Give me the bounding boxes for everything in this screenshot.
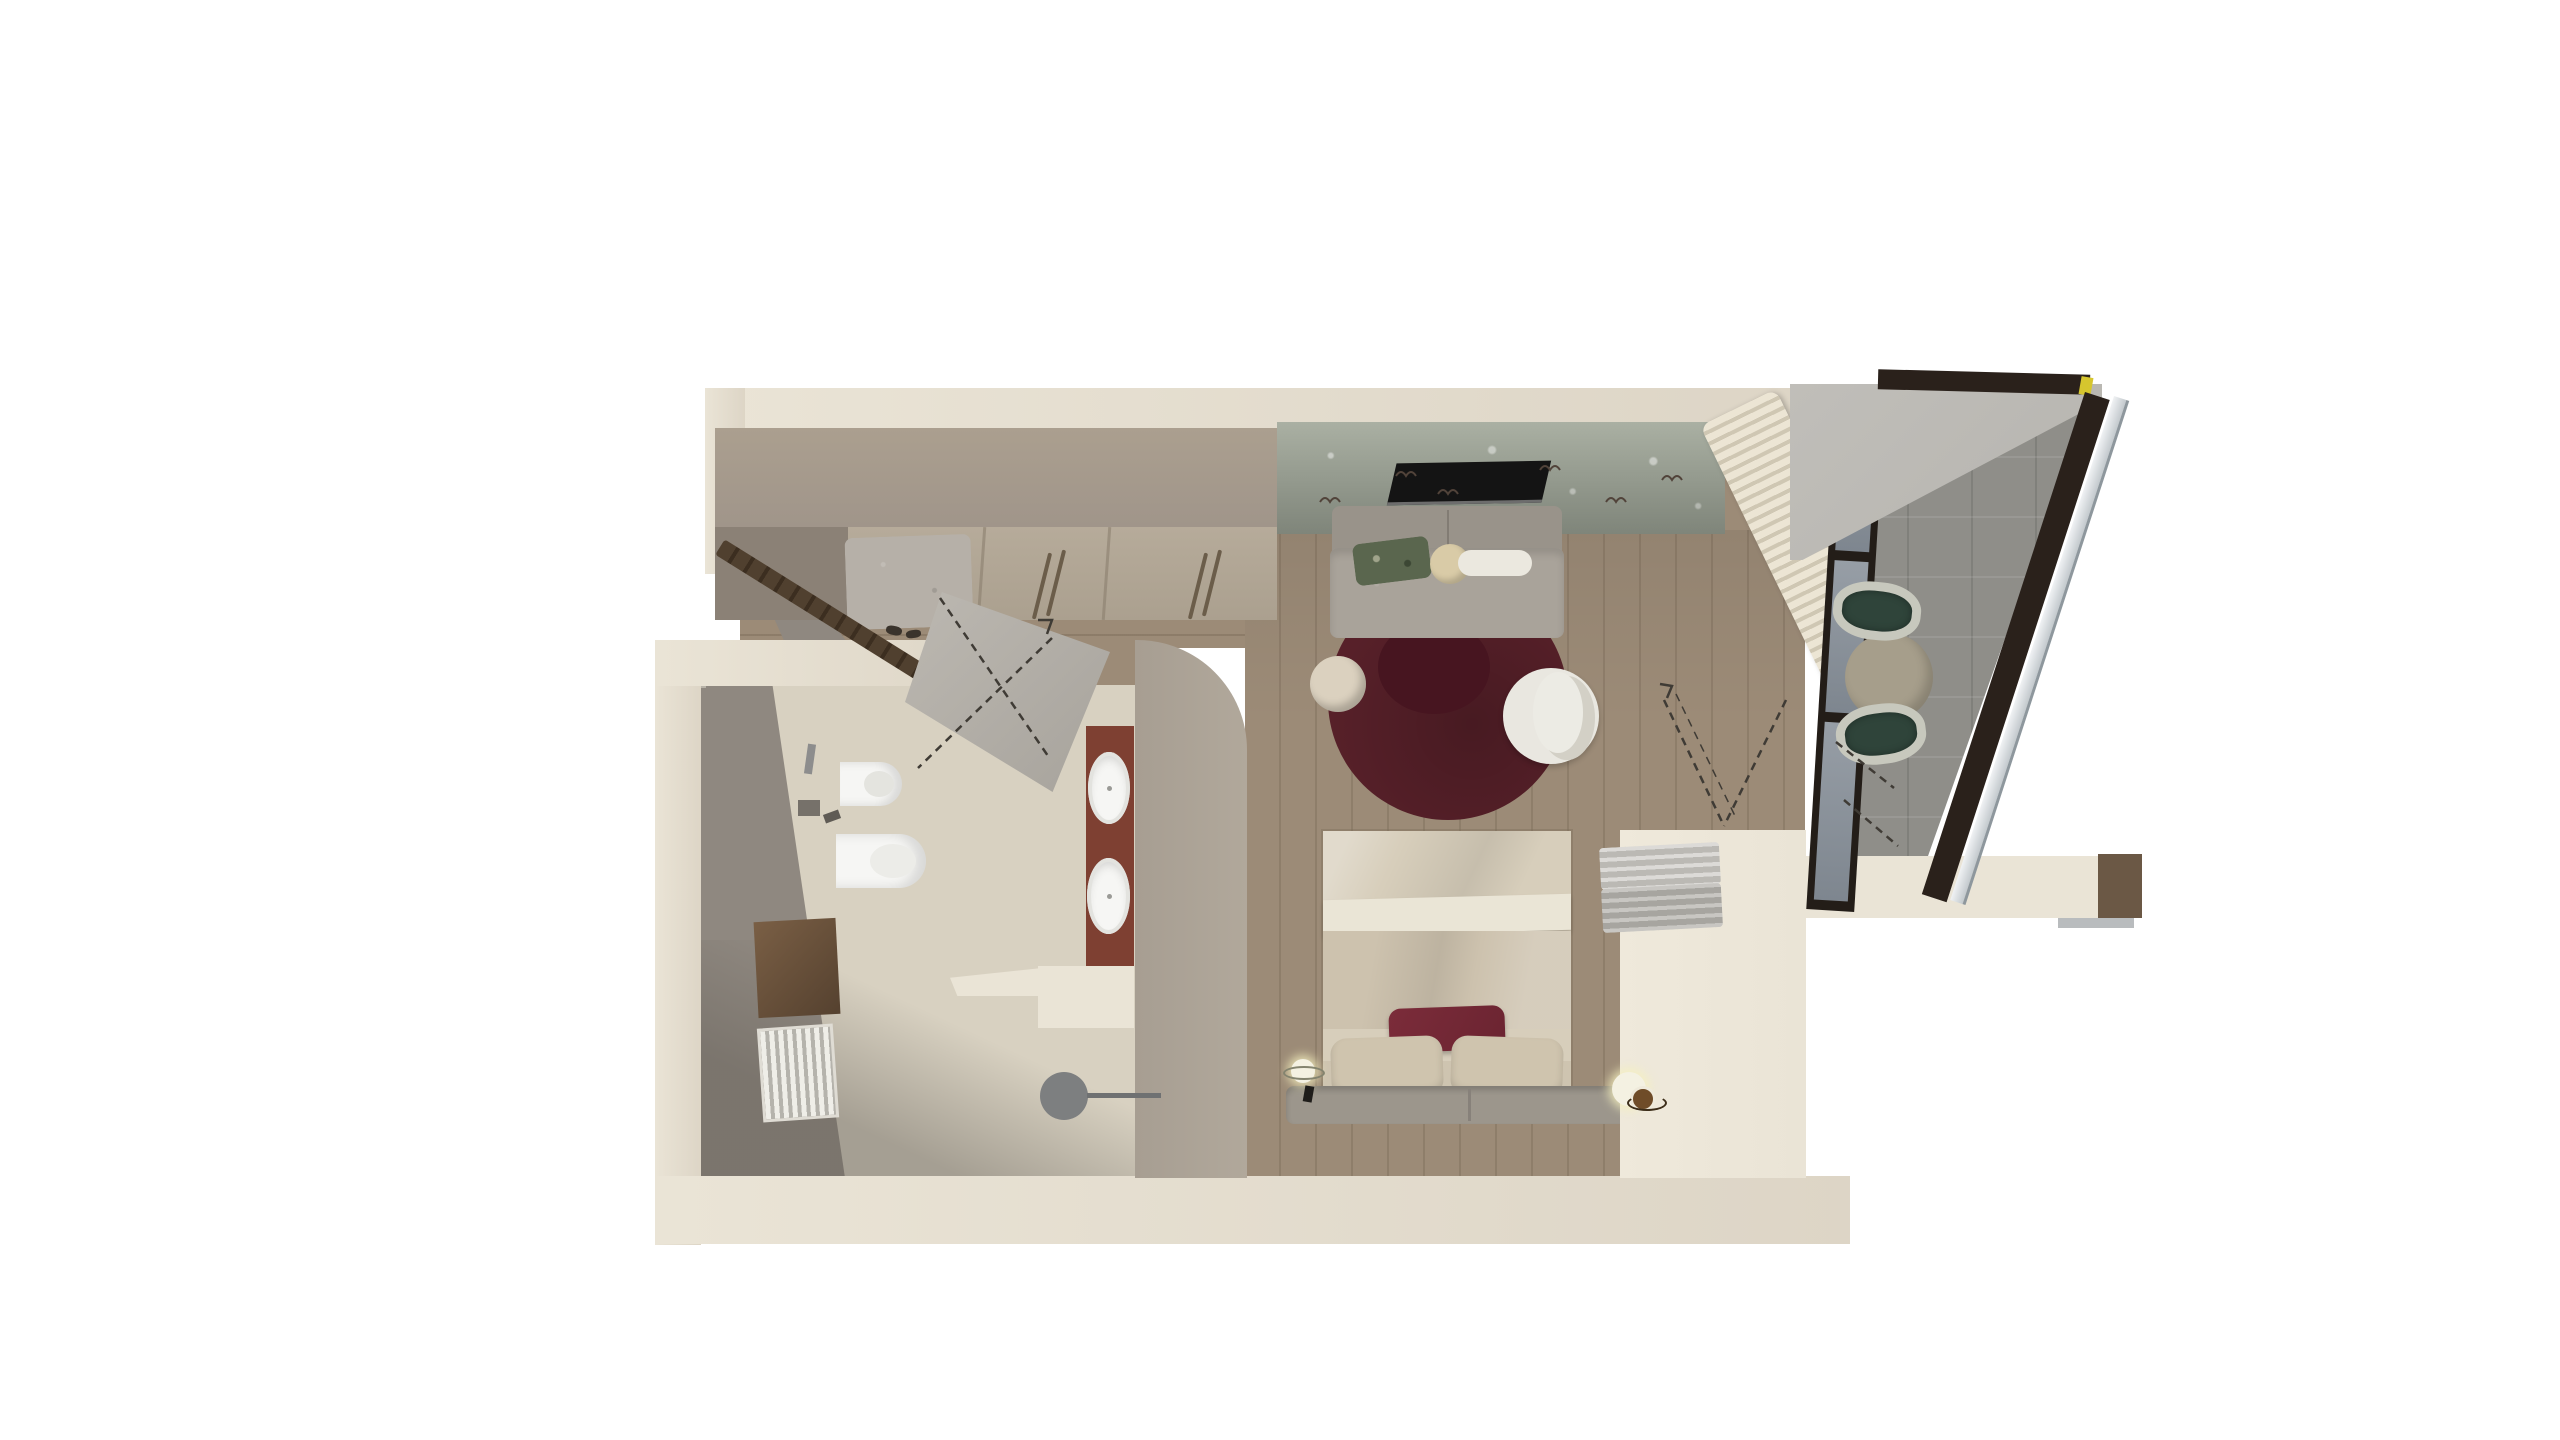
duvet-foot-fold (1323, 831, 1571, 903)
bidet (840, 762, 902, 806)
double-bed (1323, 831, 1571, 1120)
stool-handle (1087, 1093, 1161, 1098)
bottom-exterior-wall (655, 1176, 1850, 1244)
bedside-lamp (1291, 1059, 1315, 1083)
towel-stack (1601, 883, 1723, 933)
sheet-band (1323, 894, 1571, 936)
paper-holder (798, 800, 820, 816)
headboard-bench (1286, 1086, 1650, 1124)
wardrobe-top-panel (715, 428, 1277, 527)
round-stool (1040, 1072, 1088, 1120)
bedside-tray (1630, 1086, 1656, 1112)
towel-radiator (757, 1023, 839, 1122)
floor-plan-render (0, 0, 2560, 1440)
vanity-ledge (1038, 966, 1134, 1028)
wall-stub-cap (2098, 854, 2142, 918)
toilet (836, 834, 926, 888)
bathroom-wall-cabinet (754, 918, 841, 1018)
sofa (1330, 506, 1564, 638)
bathroom-left-exterior-wall (655, 640, 701, 1245)
tv-screen (1387, 461, 1551, 506)
sink (1087, 858, 1130, 934)
pouf (1310, 656, 1366, 712)
bolster-pillow (1458, 550, 1532, 576)
wall-stub-edge (2058, 918, 2134, 928)
sink (1088, 752, 1130, 824)
swivel-armchair (1503, 668, 1599, 764)
